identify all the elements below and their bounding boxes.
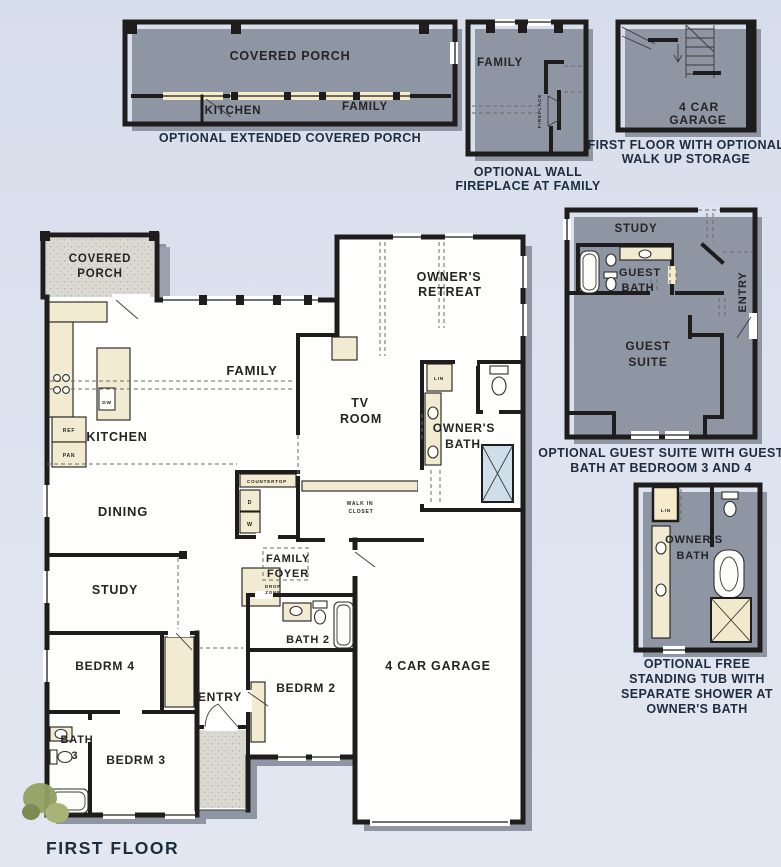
inset-guest-caption-line2: BATH AT BEDROOM 3 AND 4 (570, 461, 751, 475)
inset-tub-caption-line4: OWNER'S BATH (646, 702, 747, 716)
kitchen-counter-top (49, 302, 107, 322)
inset-porch-caption: OPTIONAL EXTENDED COVERED PORCH (159, 131, 421, 145)
main-bedrm2-label: BEDRM 2 (276, 681, 336, 695)
main-bedrm3-label: BEDRM 3 (106, 753, 166, 767)
main-owners-retreat-line2: RETREAT (418, 285, 482, 299)
first-floor-title: FIRST FLOOR (46, 838, 179, 858)
main-countertop-label: COUNTERTOP (247, 479, 287, 484)
main-bath3-line2: 3 (72, 750, 79, 762)
main-owners-retreat-line1: OWNER'S (417, 270, 482, 284)
main-family-foyer-line1: FAMILY (266, 553, 310, 565)
tv-room-niche (332, 337, 357, 360)
inset-tub-caption-line3: SEPARATE SHOWER AT (621, 687, 773, 701)
inset-tub-owners-line1: OWNER'S (665, 534, 723, 546)
inset-shadow (132, 29, 462, 131)
inset-shadow (475, 29, 593, 161)
study-pillar (179, 551, 187, 559)
floor-plan-page: COVERED PORCH KITCHEN FAMILY OPTIONAL EX… (0, 0, 781, 867)
inset-fireplace-family-label: FAMILY (477, 57, 523, 69)
main-owners-bath-line2: BATH (445, 437, 481, 451)
kitchen-counter-left (49, 322, 73, 417)
main-bath3-line1: BATH (61, 734, 94, 746)
bedrm2-closet (251, 682, 265, 742)
main-bath2-label: BATH 2 (286, 634, 330, 646)
main-study-label: STUDY (92, 583, 138, 597)
inset-guest-bath-line1: GUEST (619, 267, 661, 279)
main-drop-zone-line1: DROP (265, 584, 281, 589)
inset-tub-caption-line1: OPTIONAL FREE (644, 657, 750, 671)
walkin-closet-shelves (302, 481, 418, 491)
inset-porch-family-label: FAMILY (342, 101, 388, 113)
main-linen-label: LIN (434, 376, 444, 382)
inset-guest-suite-line1: GUEST (625, 339, 670, 353)
inset-guest-suite-line2: SUITE (628, 355, 667, 369)
inset-wall-fireplace: FAMILY FIREPLACE OPTIONAL WALL FIREPLACE… (455, 19, 601, 193)
floor-plan-canvas: COVERED PORCH KITCHEN FAMILY OPTIONAL EX… (0, 0, 781, 867)
inset-tub-owners-line2: BATH (677, 550, 710, 562)
inset-fireplace-caption-line2: FIREPLACE AT FAMILY (455, 179, 601, 193)
inset-porch-covered-porch-label: COVERED PORCH (230, 49, 351, 63)
main-bedrm4-label: BEDRM 4 (75, 659, 135, 673)
main-drop-zone-line2: ZONE (265, 590, 280, 595)
inset-walkup-storage: 4 CAR GARAGE FIRST FLOOR WITH OPTIONAL W… (588, 22, 781, 166)
main-dryer-label: D (248, 500, 253, 506)
main-covered-porch-line2: PORCH (77, 268, 123, 280)
main-tv-room-line2: ROOM (340, 412, 382, 426)
inset-tub-caption-line2: STANDING TUB WITH (629, 672, 765, 686)
inset-owners-bath-option: LIN OWNER'S BATH OPTIONAL FREE STANDING … (621, 485, 773, 716)
main-walkin-closet-line2: CLOSET (348, 509, 373, 515)
main-covered-porch-line1: COVERED (69, 253, 131, 265)
inset-storage-garage-line2: GARAGE (669, 113, 726, 127)
main-dining-label: DINING (98, 504, 148, 519)
main-garage-label: 4 CAR GARAGE (385, 659, 490, 673)
inset-storage-garage-line1: 4 CAR (679, 100, 719, 114)
inset-guest-study-label: STUDY (615, 223, 658, 235)
inset-guest-entry-label: ENTRY (737, 272, 749, 313)
inset-fireplace-fireplace-label: FIREPLACE (537, 94, 543, 128)
main-plan-footprint (43, 235, 523, 822)
inset-storage-caption-line1: FIRST FLOOR WITH OPTIONAL (588, 138, 781, 152)
main-family-label: FAMILY (226, 363, 277, 378)
main-kitchen-label: KITCHEN (86, 430, 147, 444)
entry-stoop-floor (199, 730, 248, 808)
main-owners-bath-line1: OWNER'S (433, 421, 495, 435)
main-pan-label: PAN (63, 453, 76, 459)
inset-porch-kitchen-label: KITCHEN (205, 105, 262, 117)
main-dw-label: DW (102, 400, 112, 406)
main-floor-plan: COVERED PORCH FAMILY OWNER'S RETREAT TV … (22, 231, 532, 831)
inset-guest-caption-line1: OPTIONAL GUEST SUITE WITH GUEST (538, 446, 781, 460)
main-family-foyer-line2: FOYER (267, 568, 309, 580)
inset-guest-suite: STUDY GUEST BATH ENTRY GUEST SUITE OPTIO… (538, 206, 781, 475)
inset-extended-porch: COVERED PORCH KITCHEN FAMILY OPTIONAL EX… (125, 22, 462, 145)
main-washer-label: W (247, 522, 253, 528)
inset-storage-caption-line2: WALK UP STORAGE (622, 152, 750, 166)
dishwasher (99, 388, 115, 410)
main-ref-label: REF (63, 428, 75, 434)
main-entry-label: ENTRY (198, 690, 242, 704)
inset-tub-lin-label: LIN (661, 508, 671, 514)
main-walkin-closet-line1: WALK IN (347, 501, 374, 507)
inset-guest-bath-line2: BATH (622, 282, 655, 294)
main-tv-room-line1: TV (351, 396, 369, 410)
inset-fireplace-caption-line1: OPTIONAL WALL (474, 165, 582, 179)
